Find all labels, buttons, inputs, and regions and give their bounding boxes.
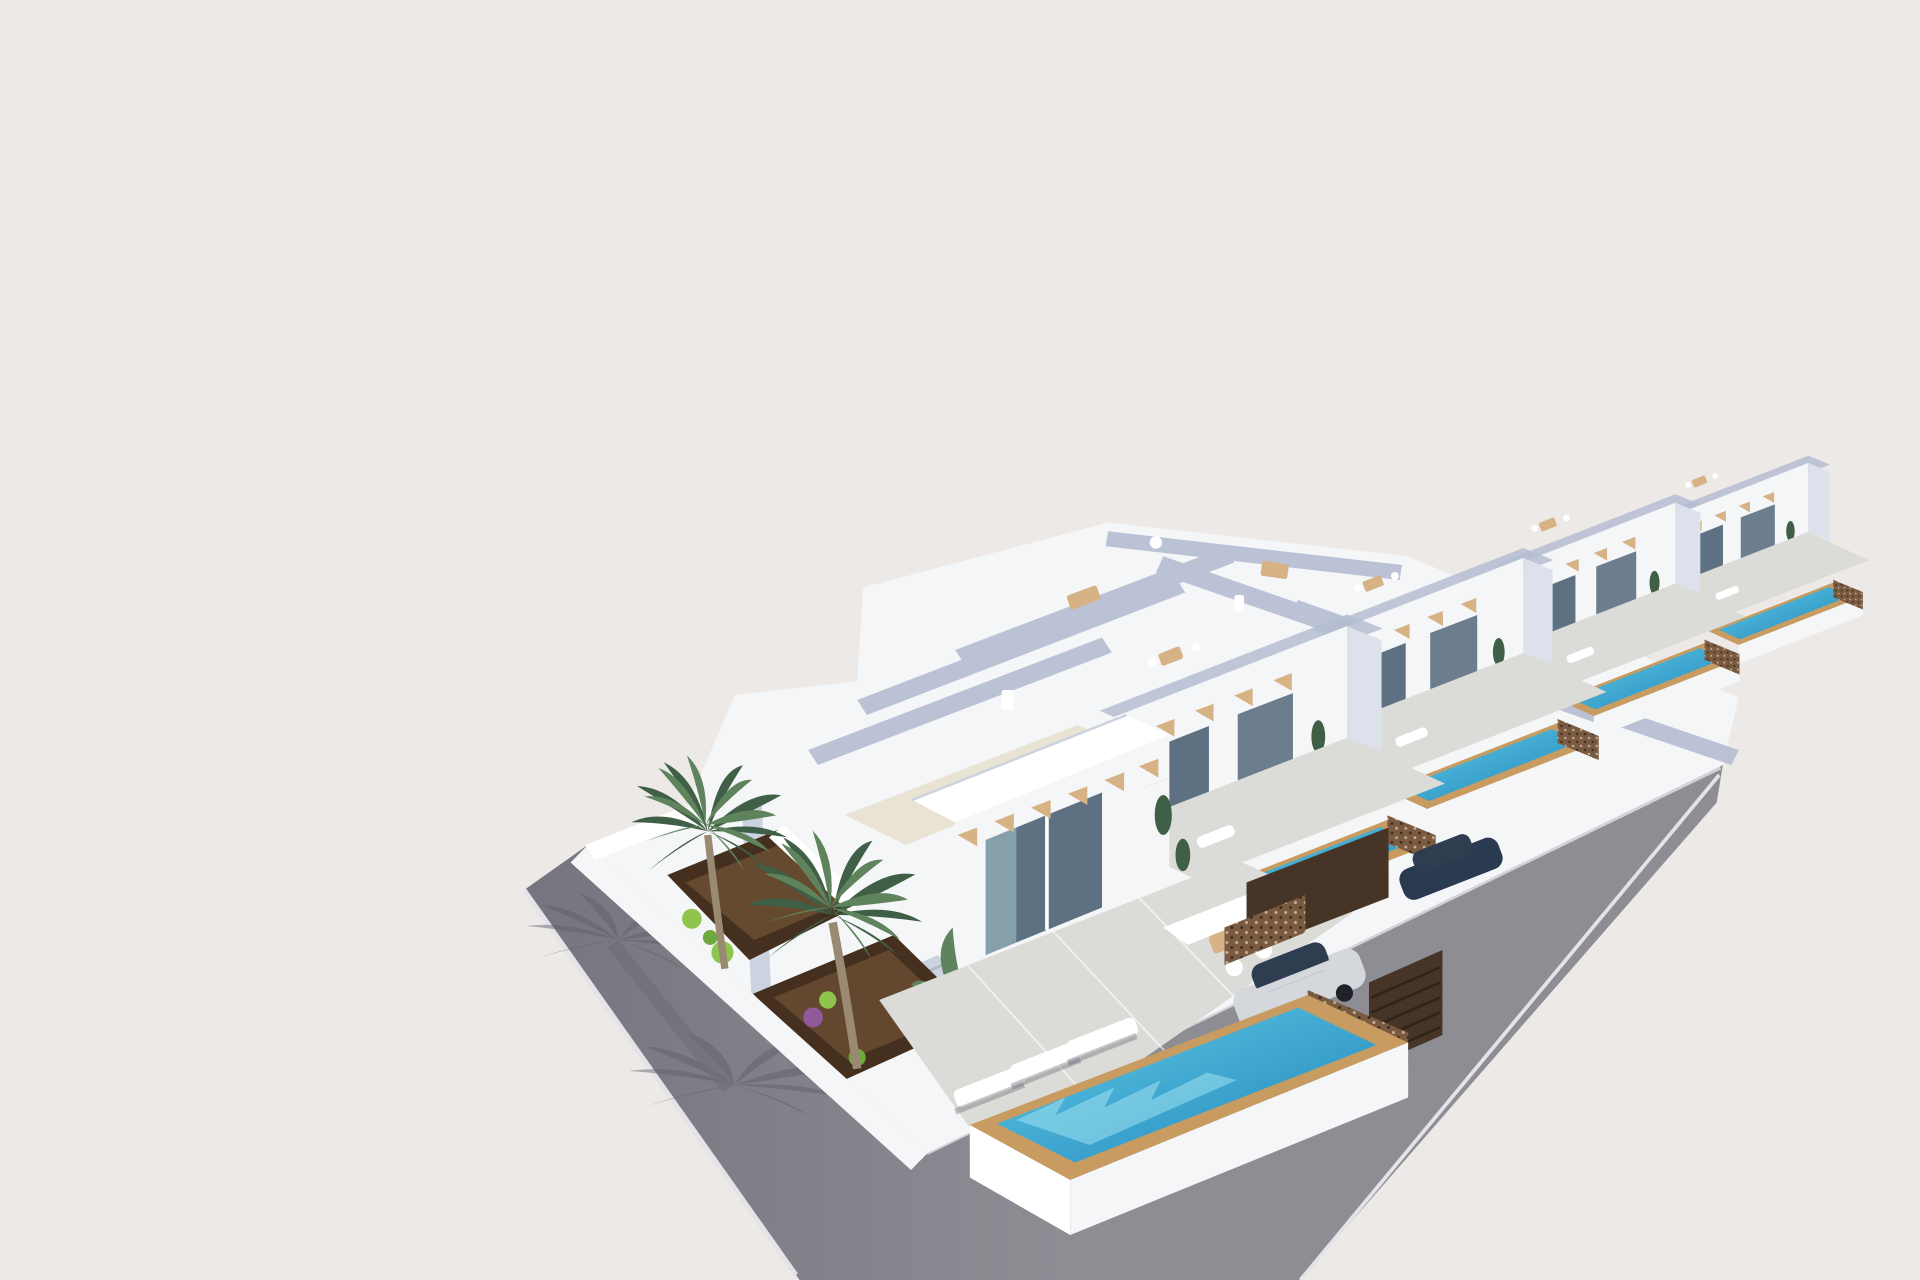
cactus [1155, 795, 1172, 835]
purple-plant [803, 1008, 823, 1028]
render-canvas [0, 0, 1920, 1280]
shrub [682, 909, 702, 929]
render-stage [0, 0, 1920, 1280]
